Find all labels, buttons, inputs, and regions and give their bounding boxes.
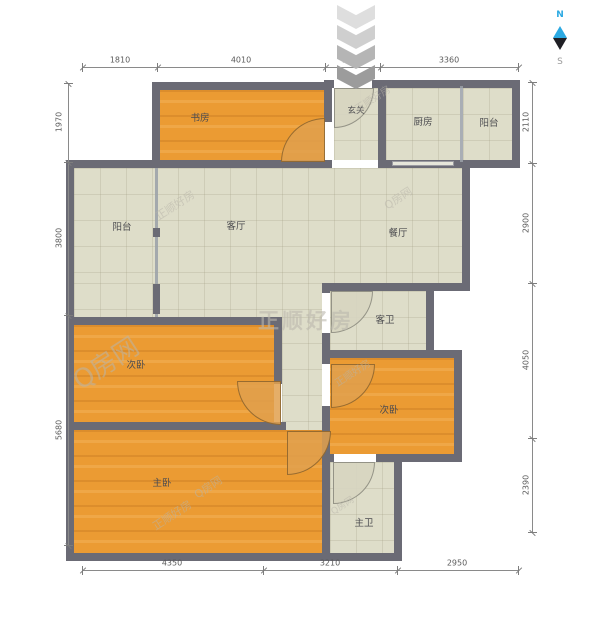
floor-living-lower	[74, 283, 322, 317]
dim-label: 3360	[439, 56, 459, 65]
dim-tick	[528, 82, 537, 83]
wall-segment	[394, 454, 402, 561]
dim-tick	[397, 566, 398, 575]
wall-segment	[322, 454, 334, 462]
dim-label: 4350	[162, 559, 182, 568]
compass-needle-north-icon	[553, 26, 567, 38]
room-label-master-bath: 主卫	[354, 515, 373, 529]
room-label-entry: 玄关	[347, 104, 364, 116]
room-label-balcony-left: 阳台	[112, 219, 131, 233]
room-label-living: 客厅	[226, 218, 245, 232]
room-label-bedroom-right: 次卧	[379, 402, 398, 416]
dimension-line-top	[82, 67, 518, 68]
dim-tick	[518, 566, 519, 575]
dim-tick	[518, 63, 519, 72]
dim-tick	[64, 315, 73, 316]
balcony-window-post	[153, 228, 160, 237]
wall-segment	[66, 422, 286, 430]
wall-segment	[378, 80, 520, 88]
room-label-guest-bath: 客卫	[375, 312, 394, 326]
dim-tick	[325, 63, 326, 72]
wall-segment	[426, 283, 434, 358]
compass-north-label: N	[556, 10, 564, 20]
room-label-kitchen: 厨房	[413, 114, 432, 128]
dim-tick	[157, 63, 158, 72]
dim-tick	[528, 283, 537, 284]
dim-label: 4010	[231, 56, 251, 65]
wall-segment	[152, 82, 160, 168]
wall-segment	[376, 454, 402, 462]
room-label-bedroom-left: 次卧	[126, 357, 145, 371]
wall-segment	[394, 454, 462, 462]
dim-tick	[528, 163, 537, 164]
wall-segment	[512, 80, 520, 168]
wall-segment	[322, 406, 330, 561]
floor-master	[74, 430, 322, 553]
dim-tick	[64, 83, 73, 84]
dim-label: 4050	[522, 350, 531, 370]
dim-tick	[380, 63, 381, 72]
wall-segment	[66, 553, 402, 561]
dim-tick	[64, 162, 73, 163]
wall-segment	[324, 80, 334, 88]
wall-segment	[454, 350, 462, 462]
dimension-line-bottom	[82, 570, 518, 571]
floor-bedroom-left	[74, 325, 274, 422]
wall-segment	[66, 317, 282, 325]
dim-label: 1810	[110, 56, 130, 65]
dim-tick	[82, 566, 83, 575]
floor-hallway	[282, 317, 322, 436]
wall-segment	[324, 82, 332, 122]
entrance-arrow-icon	[337, 5, 375, 29]
kitchen-balcony-window-line	[460, 86, 463, 162]
dim-tick	[263, 566, 264, 575]
dim-tick	[528, 532, 537, 533]
dim-label: 2390	[522, 475, 531, 495]
floorplan-canvas: 书房 玄关 厨房 阳台 阳台 客厅 餐厅 客卫 次卧 次卧 主卧 主卫 1810…	[0, 0, 600, 642]
room-label-study: 书房	[190, 110, 209, 124]
dim-label: 2950	[447, 559, 467, 568]
wall-segment	[378, 80, 386, 168]
compass-needle-south-icon	[553, 38, 567, 50]
dim-label: 2110	[522, 112, 531, 132]
dim-label: 3800	[55, 228, 64, 248]
room-label-balcony-top: 阳台	[479, 115, 498, 129]
dim-tick	[64, 545, 73, 546]
wall-segment	[274, 317, 282, 384]
wall-segment	[152, 82, 332, 90]
dim-label: 2900	[522, 213, 531, 233]
dim-label: 5680	[55, 420, 64, 440]
wall-segment	[462, 168, 470, 291]
wall-segment	[322, 333, 330, 364]
wall-segment	[322, 283, 434, 291]
dim-label: 1970	[55, 112, 64, 132]
wall-segment	[322, 350, 462, 358]
room-label-dining: 餐厅	[388, 225, 407, 239]
dim-label: 3210	[320, 559, 340, 568]
balcony-window-post	[153, 284, 160, 314]
kitchen-sliding-door	[392, 161, 454, 166]
dim-tick	[82, 63, 83, 72]
dim-tick	[528, 438, 537, 439]
room-label-master: 主卧	[152, 475, 171, 489]
compass-south-label: S	[557, 57, 563, 67]
dimension-line-right	[532, 82, 533, 532]
